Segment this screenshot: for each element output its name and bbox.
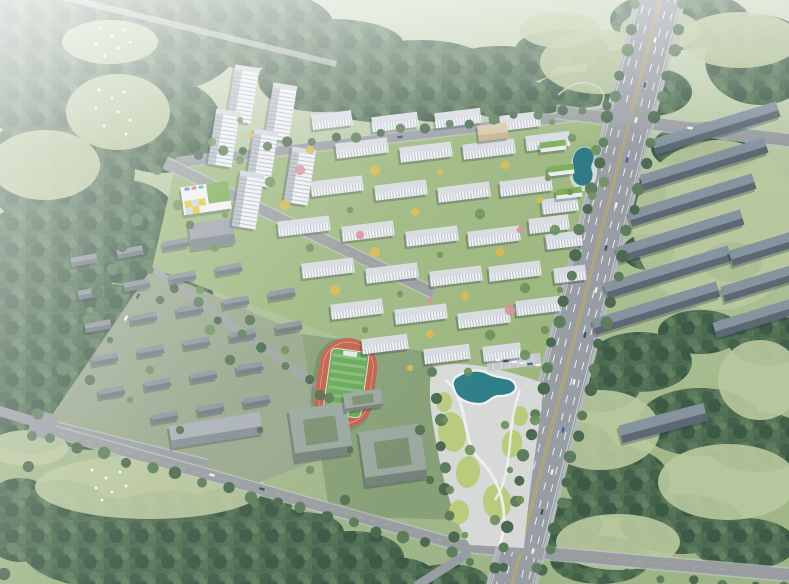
aerial-masterplan-render xyxy=(0,0,789,584)
render-canvas xyxy=(0,0,789,584)
horizon-haze xyxy=(0,0,789,150)
